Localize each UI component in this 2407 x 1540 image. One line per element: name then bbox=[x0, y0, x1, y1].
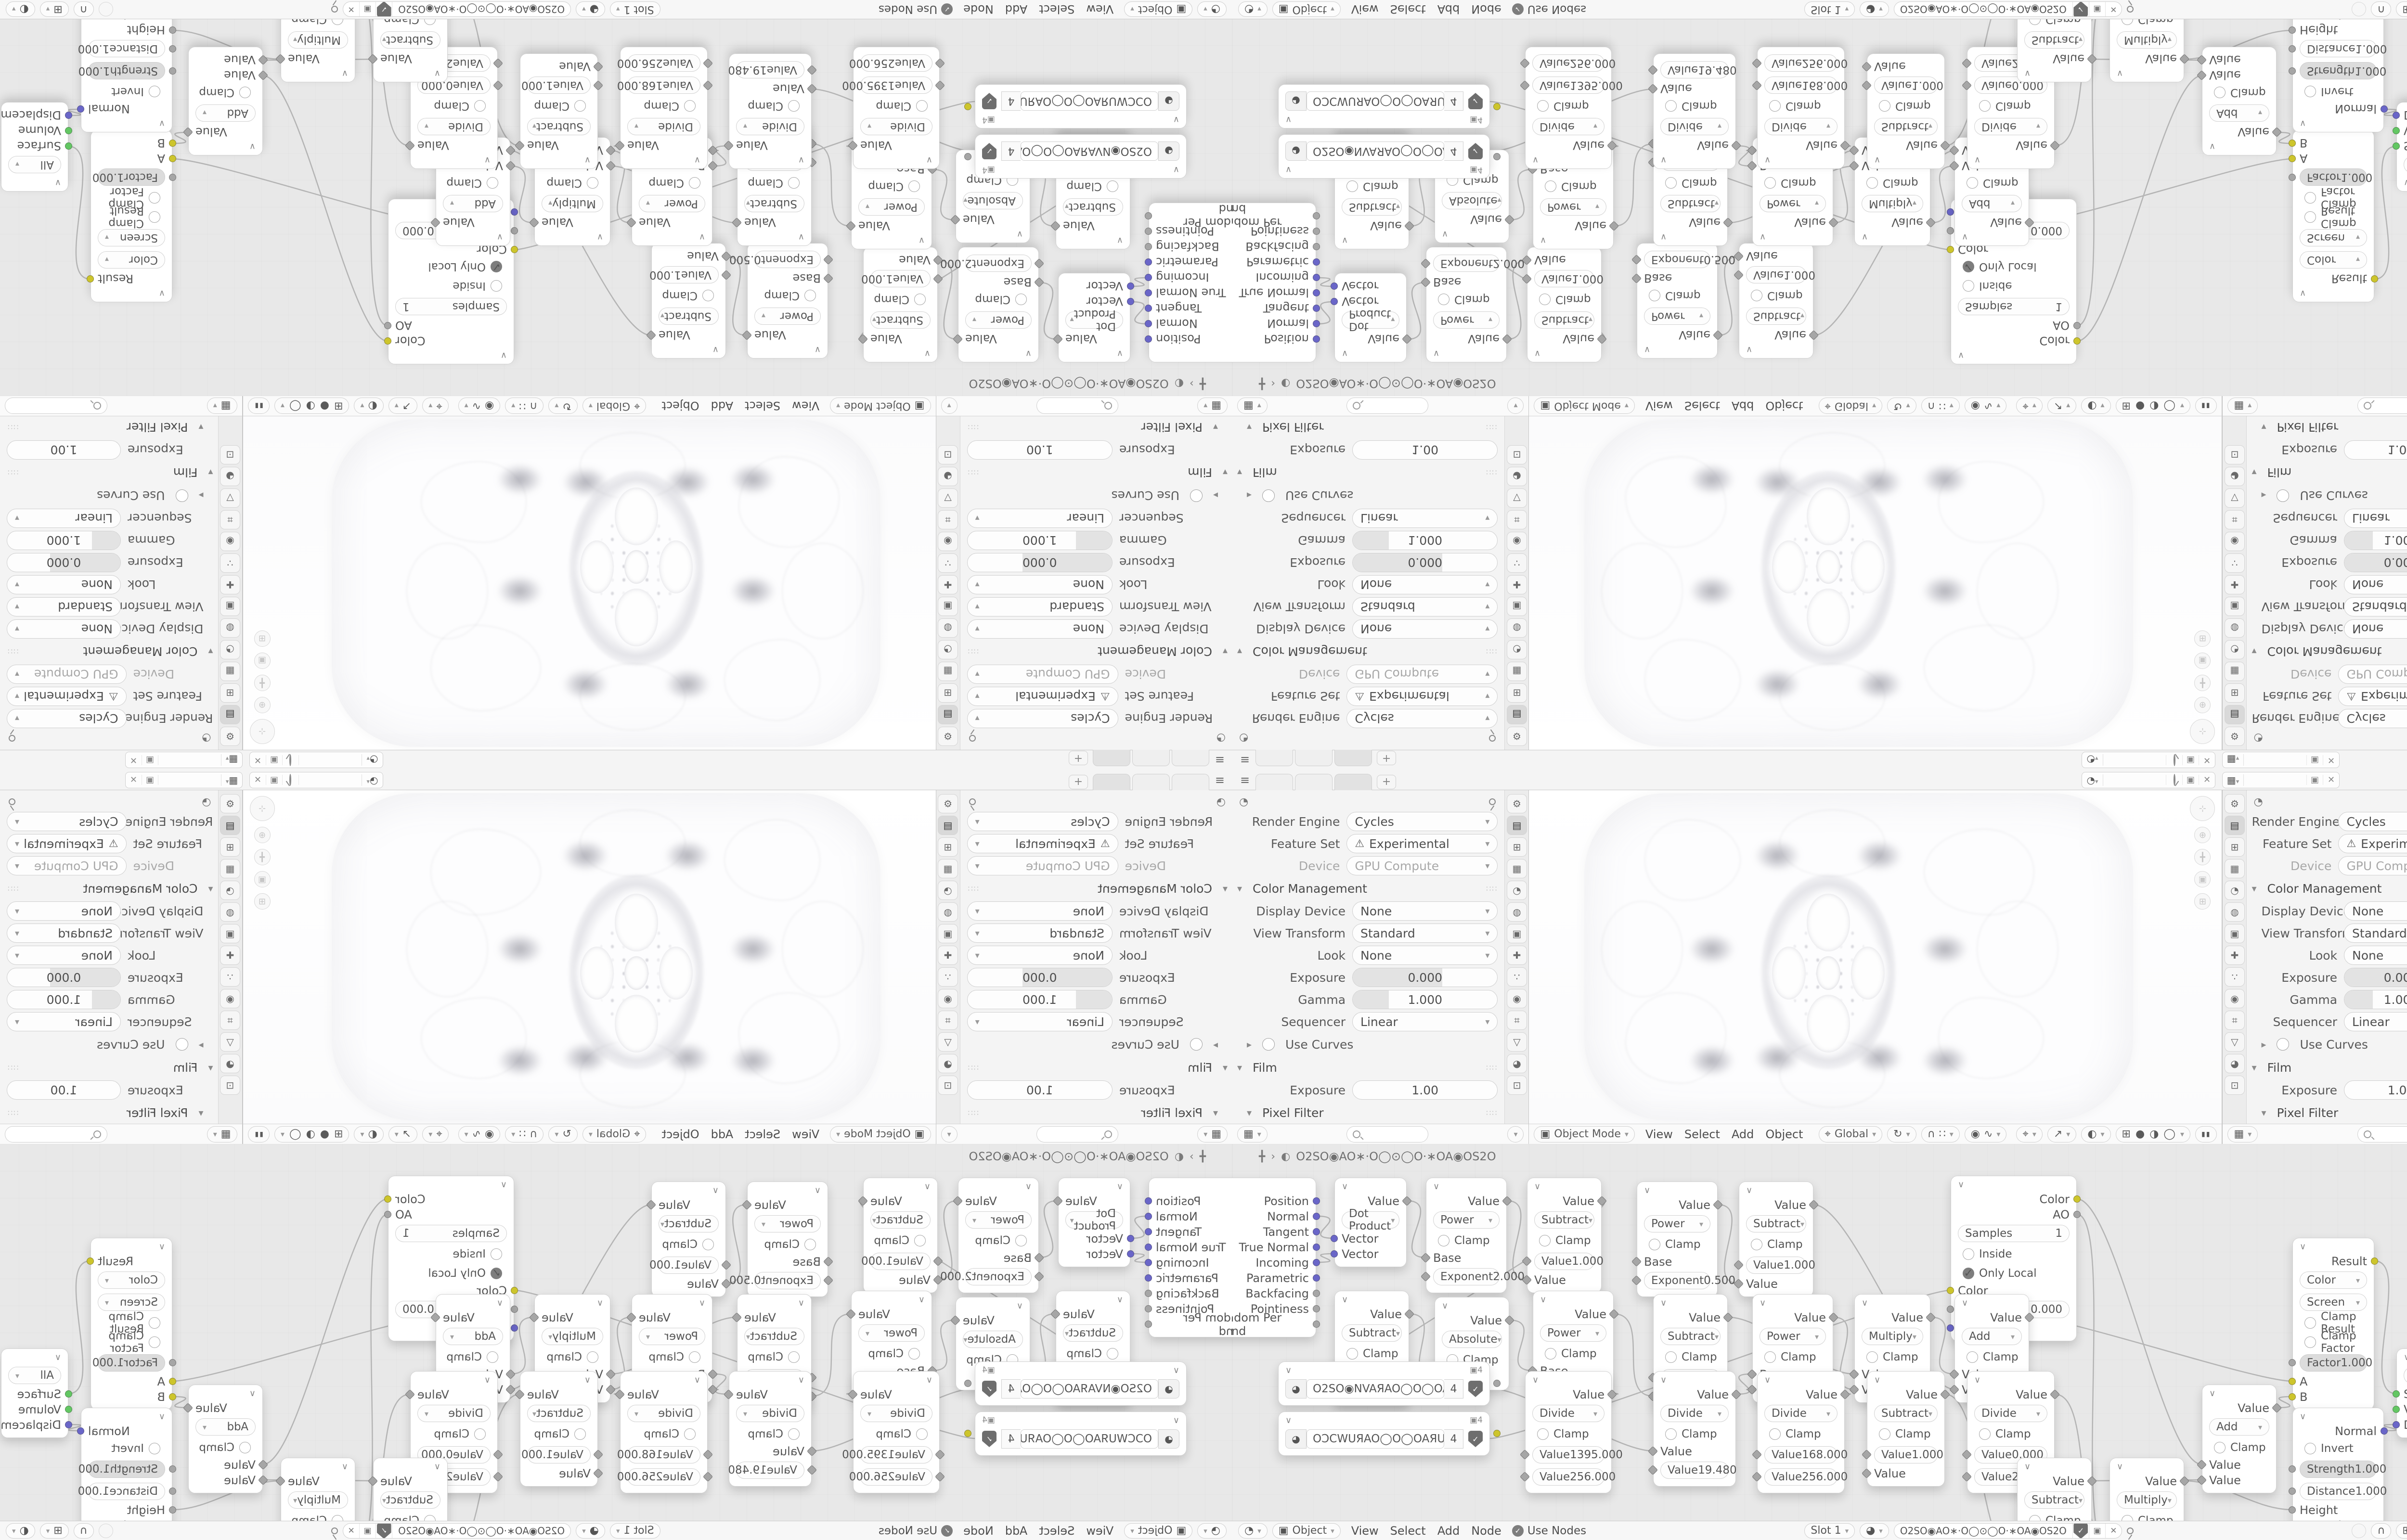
collapse-icon[interactable]: ∨ bbox=[597, 232, 603, 243]
checkbox[interactable] bbox=[332, 19, 343, 25]
node-dropdown[interactable]: Screen▾ bbox=[98, 229, 165, 246]
panel-header-color-management[interactable]: ▾Color Management∷∷ bbox=[967, 877, 1228, 900]
checkbox[interactable] bbox=[1967, 177, 1978, 189]
pan-icon[interactable]: ╋ bbox=[2194, 675, 2211, 691]
gizmo-toggle[interactable]: ↗▾ bbox=[388, 1126, 417, 1142]
input-socket[interactable] bbox=[1127, 298, 1134, 305]
properties-tab-2[interactable]: ⊞ bbox=[1507, 837, 1527, 857]
collapse-icon[interactable]: ∨ bbox=[1285, 1365, 1292, 1375]
properties-tab-12[interactable]: ◕ bbox=[938, 467, 958, 486]
properties-tab-12[interactable]: ◕ bbox=[2225, 1054, 2245, 1073]
collapse-icon[interactable]: ∨ bbox=[815, 345, 821, 355]
scene-name-field[interactable] bbox=[299, 753, 362, 768]
copy-icon[interactable]: ▣ bbox=[2306, 775, 2323, 785]
output-socket[interactable] bbox=[2073, 1195, 2081, 1203]
use-nodes-checkbox[interactable]: ✓Use Nodes bbox=[1512, 3, 1586, 16]
prop-field[interactable]: GPU Compute▾ bbox=[2338, 665, 2407, 684]
checkbox[interactable] bbox=[1751, 1239, 1762, 1250]
collapse-icon[interactable]: ∨ bbox=[1764, 1375, 1771, 1385]
node-value-field[interactable]: Value1395.000 bbox=[1532, 77, 1605, 94]
input-socket[interactable] bbox=[1331, 1235, 1338, 1242]
collapse-icon[interactable]: ∨ bbox=[798, 1298, 804, 1308]
node-value-field[interactable]: Factor1.000 bbox=[2300, 168, 2367, 186]
output-socket[interactable] bbox=[1313, 258, 1320, 266]
menu-select[interactable]: Select bbox=[1385, 1524, 1432, 1538]
properties-tab-12[interactable]: ◕ bbox=[220, 467, 240, 486]
panel-header-pixel-filter[interactable]: ▾Pixel Filter∷∷ bbox=[967, 416, 1228, 439]
input-socket[interactable] bbox=[65, 127, 72, 134]
properties-tab-0[interactable]: ⚙ bbox=[220, 794, 240, 813]
prop-field[interactable]: None▾ bbox=[967, 901, 1113, 921]
collapse-icon[interactable]: ∨ bbox=[798, 1375, 804, 1385]
prop-field[interactable]: Linear▾ bbox=[2344, 509, 2407, 528]
prop-slider[interactable]: 1.00 bbox=[967, 440, 1113, 460]
copy-icon[interactable]: ▣ bbox=[2089, 2, 2105, 17]
prop-slider[interactable]: 1.000 bbox=[7, 990, 121, 1009]
material-name[interactable]: O2SO◉AO∗·O◯⊙◯O·∗OA◉OS2O bbox=[392, 1525, 570, 1537]
node-value-field[interactable]: Strength1.000 bbox=[2300, 62, 2377, 79]
checkbox[interactable] bbox=[916, 100, 928, 112]
properties-tab-0[interactable]: ⚙ bbox=[2225, 727, 2245, 746]
checkbox[interactable] bbox=[689, 177, 700, 189]
snap-toggle[interactable]: ∩∷▾ bbox=[1921, 1126, 1960, 1142]
properties-tab-0[interactable]: ⚙ bbox=[1507, 727, 1527, 746]
panel-header-pixel-filter[interactable]: ▾Pixel Filter∷∷ bbox=[1237, 1101, 1498, 1124]
collapse-icon[interactable]: ∨ bbox=[1442, 230, 1448, 240]
node[interactable]: ∨ValueDivide▾ClampValueValue19.480 bbox=[1653, 1371, 1736, 1487]
collapse-icon[interactable]: ∨ bbox=[798, 155, 804, 166]
properties-tab-4[interactable]: ◔ bbox=[938, 640, 958, 659]
node-dropdown[interactable]: Subtract▾ bbox=[1063, 1324, 1123, 1342]
node[interactable]: ∨ValuePower▾ClampBaseExponent0.500 bbox=[1637, 243, 1718, 359]
collapse-icon[interactable]: ∨ bbox=[1342, 349, 1348, 359]
checkbox[interactable] bbox=[702, 1239, 714, 1250]
panel-header-use-curves[interactable]: ▸Use Curves bbox=[967, 1033, 1228, 1056]
collapse-icon[interactable]: ∨ bbox=[1862, 1298, 1868, 1308]
pin-icon[interactable] bbox=[9, 735, 15, 742]
checkbox[interactable] bbox=[788, 1351, 800, 1363]
node[interactable]: ∨ValuePower▾ClampBaseExponent0.500 bbox=[747, 243, 828, 359]
copy-icon[interactable]: ▣ bbox=[360, 2, 376, 17]
node-dropdown[interactable]: Divide▾ bbox=[860, 118, 932, 135]
collapse-icon[interactable]: ∨ bbox=[694, 1375, 700, 1385]
output-socket[interactable] bbox=[2073, 337, 2081, 345]
group-name-field[interactable]: OƆCWUЯAO◯O◯OAЯUWƆCO bbox=[1021, 1429, 1158, 1449]
collapse-icon[interactable]: ∨ bbox=[1285, 165, 1292, 175]
prop-field[interactable]: GPU Compute▾ bbox=[1346, 665, 1498, 684]
collapse-icon[interactable]: ∨ bbox=[2300, 289, 2306, 299]
input-socket[interactable] bbox=[2289, 1465, 2296, 1473]
node-dropdown[interactable]: Power▾ bbox=[1760, 1328, 1826, 1345]
panel-header-film[interactable]: ▾Film∷∷ bbox=[967, 1056, 1228, 1079]
shading-mode-buttons[interactable]: ⊞●◑◯▾ bbox=[2116, 398, 2191, 414]
output-socket[interactable] bbox=[2073, 1211, 2081, 1218]
properties-tab-8[interactable]: ∵ bbox=[938, 553, 958, 573]
material-name[interactable]: O2SO◉AO∗·O◯⊙◯O·∗OA◉OS2O bbox=[1894, 1525, 2072, 1537]
node-value-field[interactable]: Exponent2.000 bbox=[965, 255, 1032, 272]
prop-field[interactable]: None▾ bbox=[1352, 575, 1498, 594]
node-value-field[interactable]: Value256.000 bbox=[1532, 1468, 1605, 1486]
nav-gizmo[interactable]: ⊹ bbox=[250, 719, 275, 744]
checkbox[interactable] bbox=[788, 1428, 800, 1440]
node-group[interactable]: ∨▣4◕OƆCWUЯAO◯O◯OAЯUWƆCO4✓ bbox=[1278, 1412, 1490, 1456]
shading-mode-buttons[interactable]: ⊞●◑◯▾ bbox=[2116, 1126, 2191, 1142]
input-socket[interactable] bbox=[2289, 155, 2296, 162]
properties-tab-5[interactable]: ◍ bbox=[938, 618, 958, 638]
collapse-icon[interactable]: ∨ bbox=[249, 1388, 256, 1399]
collapse-icon[interactable]: ∨ bbox=[1660, 1298, 1667, 1308]
node-dropdown[interactable]: Dot Product▾ bbox=[1065, 1211, 1123, 1229]
node-value-field[interactable]: Value19.480 bbox=[736, 1462, 804, 1479]
copy-icon[interactable]: ▣ bbox=[2182, 755, 2199, 765]
pin-icon[interactable] bbox=[2166, 775, 2182, 785]
properties-tab-11[interactable]: ▽ bbox=[220, 488, 240, 508]
node[interactable]: ∨ValueDot Product▾VectorVector bbox=[1334, 273, 1407, 362]
panel-header-color-management[interactable]: ▾Color Management∷∷ bbox=[1237, 877, 1498, 900]
properties-tab-9[interactable]: ◉ bbox=[2225, 989, 2245, 1008]
checkbox[interactable] bbox=[149, 1443, 160, 1454]
node[interactable]: ∨All▾SurfaceVolumeDisplacement bbox=[1, 1348, 68, 1438]
output-socket[interactable] bbox=[1493, 1430, 1501, 1437]
node[interactable]: ∨ValueDivide▾ClampValueValue19.480 bbox=[1653, 53, 1736, 169]
node[interactable]: ∨ValueSubtract▾ClampValue1.000Value bbox=[1739, 243, 1813, 359]
properties-tab-7[interactable]: ✚ bbox=[938, 946, 958, 965]
checkbox[interactable]: ✓ bbox=[491, 1268, 502, 1279]
gizmo-toggle[interactable]: ↗▾ bbox=[2047, 398, 2076, 414]
node[interactable]: ∨NormalInvertStrength1.000Distance1.000H… bbox=[2292, 1408, 2384, 1521]
node-dropdown[interactable]: Power▾ bbox=[858, 1324, 925, 1342]
collapse-icon[interactable]: ∨ bbox=[1958, 1180, 1964, 1190]
properties-tab-11[interactable]: ▽ bbox=[1507, 488, 1527, 508]
properties-tab-9[interactable]: ◉ bbox=[938, 532, 958, 551]
menu-add[interactable]: Add bbox=[1432, 1524, 1465, 1538]
zoom-icon[interactable]: ⊕ bbox=[254, 697, 271, 713]
collapse-icon[interactable]: ∨ bbox=[712, 345, 719, 355]
input-socket[interactable] bbox=[1331, 282, 1338, 290]
prop-field[interactable]: None▾ bbox=[7, 946, 121, 965]
node-value-field[interactable]: Value256.000 bbox=[860, 1468, 932, 1486]
camera-icon[interactable]: ▣ bbox=[254, 871, 271, 887]
menu-add[interactable]: Add bbox=[705, 399, 739, 413]
properties-tab-1[interactable]: ▤ bbox=[1507, 705, 1527, 724]
node-dropdown[interactable]: Subtract▾ bbox=[1746, 1215, 1806, 1232]
checkbox[interactable] bbox=[332, 1515, 343, 1521]
add-workspace-button[interactable]: + bbox=[1069, 751, 1088, 766]
node[interactable]: ∨ValuePower▾ClampBaseExponent2.000 bbox=[1426, 1178, 1507, 1293]
node-dropdown[interactable]: Power▾ bbox=[1433, 1211, 1500, 1229]
input-socket[interactable] bbox=[1947, 1324, 1954, 1332]
checkbox[interactable] bbox=[1346, 1348, 1358, 1360]
output-socket[interactable] bbox=[1313, 305, 1320, 312]
collapse-icon[interactable]: ∨ bbox=[55, 1352, 61, 1362]
node-dropdown[interactable]: Subtract▾ bbox=[380, 31, 440, 49]
node[interactable]: ∨ValueSubtract▾ClampValue1.000Value bbox=[520, 53, 598, 169]
input-socket[interactable] bbox=[169, 67, 176, 75]
panel-header-use-curves[interactable]: ▸Use Curves bbox=[2252, 484, 2407, 507]
collapse-icon[interactable]: ∨ bbox=[1532, 1375, 1539, 1385]
node-dropdown[interactable]: Subtract▾ bbox=[1874, 118, 1938, 135]
checkbox[interactable] bbox=[1963, 280, 1974, 292]
checkbox[interactable] bbox=[2214, 1442, 2226, 1453]
prop-slider[interactable]: 1.000 bbox=[2344, 531, 2407, 550]
collapse-icon[interactable]: ∨ bbox=[1285, 1415, 1292, 1425]
prop-field[interactable]: Standard▾ bbox=[2344, 924, 2407, 943]
node-group[interactable]: ∨▣4◕O2SO◉NVAЯAO◯O◯OAЯAVN◉OS2O4✓ bbox=[975, 134, 1187, 179]
checkbox[interactable] bbox=[1649, 1239, 1660, 1250]
collapse-icon[interactable]: ∨ bbox=[1433, 349, 1439, 359]
menu-select[interactable]: Select bbox=[1033, 3, 1080, 16]
prop-field[interactable]: Linear▾ bbox=[967, 1012, 1113, 1031]
collapse-icon[interactable]: ∨ bbox=[712, 1185, 719, 1195]
fake-user-shield-icon[interactable]: ✓ bbox=[1468, 93, 1483, 109]
workspace-tab[interactable] bbox=[1132, 774, 1170, 790]
viewlayer-selector[interactable]: ▦▾ ▣ ✕ bbox=[125, 772, 243, 788]
orientation-dropdown[interactable]: ⌖Global▾ bbox=[1819, 398, 1883, 414]
ortho-icon[interactable]: ⊞ bbox=[254, 630, 271, 647]
checkbox[interactable] bbox=[1438, 294, 1449, 305]
properties-tab-3[interactable]: ▦ bbox=[1507, 859, 1527, 878]
node-dropdown[interactable]: Divide▾ bbox=[1974, 118, 2047, 135]
output-socket[interactable] bbox=[1145, 274, 1152, 281]
node-dropdown[interactable]: Subtract▾ bbox=[659, 1215, 719, 1232]
collapse-icon[interactable]: ∨ bbox=[159, 1412, 165, 1422]
output-socket[interactable] bbox=[1145, 1244, 1152, 1251]
prop-slider[interactable]: 1.000 bbox=[1352, 531, 1498, 550]
material-slot-dropdown[interactable]: Slot 1▾ bbox=[1804, 2, 1855, 17]
fake-user-shield-icon[interactable]: ✓ bbox=[982, 1381, 996, 1397]
node-dropdown[interactable]: Add▾ bbox=[2209, 1418, 2269, 1436]
input-socket[interactable] bbox=[169, 1465, 176, 1473]
prop-field[interactable]: Cycles▾ bbox=[1346, 812, 1498, 831]
menu-add[interactable]: Add bbox=[999, 3, 1033, 16]
node-dropdown[interactable]: Divide▾ bbox=[1764, 1405, 1838, 1422]
collapse-icon[interactable]: ∨ bbox=[342, 1462, 348, 1472]
use-nodes-checkbox[interactable]: ✓Use Nodes bbox=[879, 1525, 953, 1537]
workspace-tab[interactable] bbox=[1334, 750, 1372, 767]
checkbox[interactable] bbox=[1537, 1428, 1549, 1440]
properties-tab-13[interactable]: ⊡ bbox=[938, 445, 958, 464]
group-name-field[interactable]: OƆCWUЯAO◯O◯OAЯUWƆCO bbox=[1307, 91, 1444, 111]
nav-gizmo[interactable]: ⊹ bbox=[2190, 719, 2215, 744]
output-socket[interactable] bbox=[1313, 243, 1320, 250]
menu-node[interactable]: Node bbox=[1465, 3, 1507, 16]
properties-tab-6[interactable]: ▣ bbox=[2225, 924, 2245, 943]
checkbox[interactable] bbox=[1979, 100, 1991, 112]
prop-field[interactable]: Cycles▾ bbox=[7, 812, 127, 831]
node-dropdown[interactable]: Divide▾ bbox=[417, 1405, 491, 1422]
overlays-toggle[interactable]: ◐▾ bbox=[2081, 398, 2110, 414]
input-socket[interactable] bbox=[2289, 1359, 2296, 1366]
snap-grid-dropdown[interactable]: ⊞▾ bbox=[2396, 2, 2407, 17]
viewlayer-name-field[interactable] bbox=[2244, 753, 2306, 768]
properties-tab-10[interactable]: ⌗ bbox=[220, 510, 240, 529]
input-socket[interactable] bbox=[2289, 26, 2296, 34]
panel-header-pixel-filter[interactable]: ▾Pixel Filter∷∷ bbox=[1237, 416, 1498, 439]
pin-icon[interactable] bbox=[969, 798, 976, 805]
output-socket[interactable] bbox=[1313, 1290, 1320, 1297]
node[interactable]: ∨NormalInvertStrength1.000Distance1.000H… bbox=[81, 1408, 172, 1521]
collapse-icon[interactable]: ∨ bbox=[1660, 155, 1667, 166]
workspace-tab[interactable] bbox=[1093, 750, 1130, 767]
properties-tab-1[interactable]: ▤ bbox=[938, 816, 958, 835]
node[interactable]: ∨All▾SurfaceVolumeDisplacement bbox=[1, 102, 68, 192]
node-value-field[interactable]: Value1.000 bbox=[1746, 1257, 1806, 1274]
viewlayer-name-field[interactable] bbox=[2244, 772, 2306, 788]
workspace-tab[interactable] bbox=[1093, 774, 1130, 790]
search-input[interactable] bbox=[2357, 398, 2407, 414]
collapse-icon[interactable]: ∨ bbox=[699, 232, 705, 243]
properties-tab-2[interactable]: ⊞ bbox=[220, 683, 240, 703]
properties-tab-12[interactable]: ◕ bbox=[938, 1054, 958, 1073]
collapse-icon[interactable]: ∨ bbox=[55, 178, 61, 188]
prop-field[interactable]: None▾ bbox=[7, 575, 121, 594]
node-dropdown[interactable]: Screen▾ bbox=[2300, 229, 2367, 246]
node-value-field[interactable]: Value168.000 bbox=[627, 1446, 700, 1463]
node-group[interactable]: ∨▣4◕OƆCWUЯAO◯O◯OAЯUWƆCO4✓ bbox=[975, 84, 1187, 128]
input-socket[interactable] bbox=[1127, 1235, 1134, 1242]
properties-tab-7[interactable]: ✚ bbox=[220, 575, 240, 594]
properties-tab-8[interactable]: ∵ bbox=[220, 967, 240, 987]
panel-header-pixel-filter[interactable]: ▾Pixel Filter∷∷ bbox=[7, 416, 213, 439]
search-input[interactable] bbox=[2357, 1126, 2407, 1142]
properties-tab-4[interactable]: ◔ bbox=[938, 881, 958, 900]
output-socket[interactable] bbox=[1313, 1197, 1320, 1205]
scene-selector[interactable]: ◔▾ ▣ ✕ bbox=[249, 752, 383, 769]
input-socket[interactable] bbox=[1947, 1306, 1954, 1313]
output-socket[interactable] bbox=[77, 105, 84, 113]
properties-tab-10[interactable]: ⌗ bbox=[938, 510, 958, 529]
properties-tab-6[interactable]: ▣ bbox=[938, 597, 958, 616]
nav-gizmo[interactable]: ⊹ bbox=[2190, 796, 2215, 821]
shading-mode-2[interactable]: ◑ bbox=[2149, 400, 2159, 412]
editor-type-button[interactable]: ▦▾ bbox=[207, 398, 237, 414]
input-socket[interactable] bbox=[2289, 1393, 2296, 1400]
material-name-field[interactable]: O2SO◉AO∗·O◯⊙◯O·∗OA◉OS2O ✓ ▣ ✕ bbox=[1894, 2, 2122, 17]
copy-icon[interactable]: ▣ bbox=[360, 1524, 376, 1538]
node[interactable]: ∨ValuePower▾ClampBaseExponent2.000 bbox=[1426, 247, 1507, 362]
node-dropdown[interactable]: Divide▾ bbox=[627, 118, 700, 135]
prop-field[interactable]: Cycles▾ bbox=[967, 709, 1118, 728]
scene-name-field[interactable] bbox=[2103, 772, 2166, 788]
panel-header-color-management[interactable]: ▾Color Management∷∷ bbox=[967, 640, 1228, 663]
panel-header-film[interactable]: ▾Film∷∷ bbox=[1237, 461, 1498, 484]
pan-icon[interactable]: ╋ bbox=[2194, 849, 2211, 865]
checkbox[interactable] bbox=[1866, 1351, 1878, 1363]
node-dropdown[interactable]: Multiply▾ bbox=[288, 31, 348, 49]
close-icon[interactable]: ✕ bbox=[2323, 755, 2339, 765]
node[interactable]: ∨ValueDot Product▾VectorVector bbox=[1334, 1178, 1407, 1267]
properties-tab-0[interactable]: ⚙ bbox=[938, 794, 958, 813]
properties-tab-13[interactable]: ⊡ bbox=[1507, 445, 1527, 464]
mode-dropdown[interactable]: ▣Object Mode▾ bbox=[1534, 1126, 1634, 1142]
input-socket[interactable] bbox=[169, 1378, 176, 1385]
material-slot-dropdown[interactable]: Slot 1▾ bbox=[1804, 1523, 1855, 1539]
input-socket[interactable] bbox=[2289, 174, 2296, 181]
panel-header-film[interactable]: ▾Film∷∷ bbox=[2252, 461, 2407, 484]
properties-tab-8[interactable]: ∵ bbox=[2225, 967, 2245, 987]
zoom-icon[interactable]: ⊕ bbox=[2194, 827, 2211, 843]
node-dropdown[interactable]: All▾ bbox=[8, 156, 61, 173]
properties-tab-2[interactable]: ⊞ bbox=[938, 683, 958, 703]
collapse-icon[interactable]: ∨ bbox=[1962, 232, 1968, 243]
prop-field[interactable]: None▾ bbox=[967, 575, 1113, 594]
checkbox[interactable] bbox=[1665, 1351, 1677, 1363]
snap-toggle[interactable]: ∩∷▾ bbox=[1921, 398, 1960, 414]
properties-tab-13[interactable]: ⊡ bbox=[220, 1076, 240, 1095]
output-socket[interactable] bbox=[1145, 335, 1152, 343]
visibility-dropdown[interactable]: ⌖▾ bbox=[2016, 398, 2042, 414]
prop-slider[interactable]: 1.00 bbox=[1352, 440, 1498, 460]
pin-icon[interactable] bbox=[2127, 1527, 2134, 1534]
node-value-field[interactable]: Value256.000 bbox=[627, 54, 700, 72]
prop-field[interactable]: None▾ bbox=[1352, 619, 1498, 639]
input-socket[interactable] bbox=[1331, 1250, 1338, 1258]
menu-add[interactable]: Add bbox=[999, 1524, 1033, 1538]
menu-view[interactable]: View bbox=[1080, 1524, 1119, 1538]
collapse-icon[interactable]: ∨ bbox=[584, 155, 591, 166]
checkbox[interactable] bbox=[2122, 19, 2133, 25]
properties-tab-5[interactable]: ◍ bbox=[220, 618, 240, 638]
shading-mode-3[interactable]: ◯ bbox=[2163, 1128, 2175, 1140]
shader-type-dropdown[interactable]: ▣Object▾ bbox=[1272, 2, 1341, 17]
node-dropdown[interactable]: Subtract▾ bbox=[380, 1491, 440, 1509]
collapse-icon[interactable]: ∨ bbox=[1025, 1181, 1032, 1192]
input-socket[interactable] bbox=[2393, 142, 2400, 150]
output-socket[interactable] bbox=[1313, 1274, 1320, 1282]
properties-tab-12[interactable]: ◕ bbox=[220, 1054, 240, 1073]
viewport-render[interactable]: ⊹ ⊕ ╋ ▣ ⊞ bbox=[243, 790, 936, 1124]
collapse-icon[interactable]: ∨ bbox=[249, 142, 256, 152]
properties-tab-7[interactable]: ✚ bbox=[1507, 946, 1527, 965]
node-dropdown[interactable]: Multiply▾ bbox=[542, 1328, 603, 1345]
checkbox[interactable] bbox=[1262, 1038, 1275, 1051]
properties-tab-0[interactable]: ⚙ bbox=[938, 727, 958, 746]
collapse-icon[interactable]: ∨ bbox=[1660, 1375, 1667, 1385]
output-socket[interactable] bbox=[1493, 1380, 1501, 1387]
node-dropdown[interactable]: Subtract▾ bbox=[1746, 308, 1806, 325]
close-icon[interactable]: ✕ bbox=[2323, 775, 2339, 785]
node-value-field[interactable]: Value19.480 bbox=[1660, 1462, 1729, 1479]
input-socket[interactable] bbox=[1947, 246, 1954, 253]
app-menu-icon[interactable]: ≡ bbox=[1240, 773, 1250, 787]
collapse-icon[interactable]: ∨ bbox=[2300, 119, 2306, 129]
use-nodes-checkbox[interactable]: ✓Use Nodes bbox=[1512, 1525, 1586, 1537]
menu-object[interactable]: Object bbox=[1760, 1128, 1809, 1141]
material-name-field[interactable]: O2SO◉AO∗·O◯⊙◯O·∗OA◉OS2O ✓ ▣ ✕ bbox=[1894, 1523, 2122, 1539]
nav-gizmo[interactable]: ⊹ bbox=[250, 796, 275, 821]
node-value-field[interactable]: Value19.480 bbox=[1660, 61, 1729, 78]
checkbox[interactable] bbox=[1346, 180, 1358, 192]
node-dropdown[interactable]: Power▾ bbox=[965, 311, 1032, 329]
shading-mode-1[interactable]: ● bbox=[2135, 400, 2145, 412]
shading-mode-1[interactable]: ● bbox=[320, 1128, 329, 1140]
menu-add[interactable]: Add bbox=[1726, 399, 1760, 413]
input-socket[interactable] bbox=[169, 174, 176, 181]
properties-tab-6[interactable]: ▣ bbox=[1507, 597, 1527, 616]
properties-tab-6[interactable]: ▣ bbox=[2225, 597, 2245, 616]
material-slot-dropdown[interactable]: Slot 1▾ bbox=[610, 1523, 660, 1539]
node[interactable]: ∨PositionNormalTangentTrue NormalIncomin… bbox=[1149, 203, 1232, 362]
scene-name-field[interactable] bbox=[299, 772, 362, 788]
panel-header-use-curves[interactable]: ▸Use Curves bbox=[1237, 484, 1498, 507]
properties-tab-10[interactable]: ⌗ bbox=[1507, 1011, 1527, 1030]
collapse-icon[interactable]: ∨ bbox=[1173, 165, 1179, 175]
properties-tab-7[interactable]: ✚ bbox=[1507, 575, 1527, 594]
output-socket[interactable] bbox=[1145, 305, 1152, 312]
viewport-render[interactable]: ⊹ ⊕ ╋ ▣ ⊞ bbox=[1529, 416, 2222, 750]
prop-field[interactable]: Linear▾ bbox=[7, 509, 121, 528]
collapse-icon[interactable]: ∨ bbox=[694, 155, 700, 166]
